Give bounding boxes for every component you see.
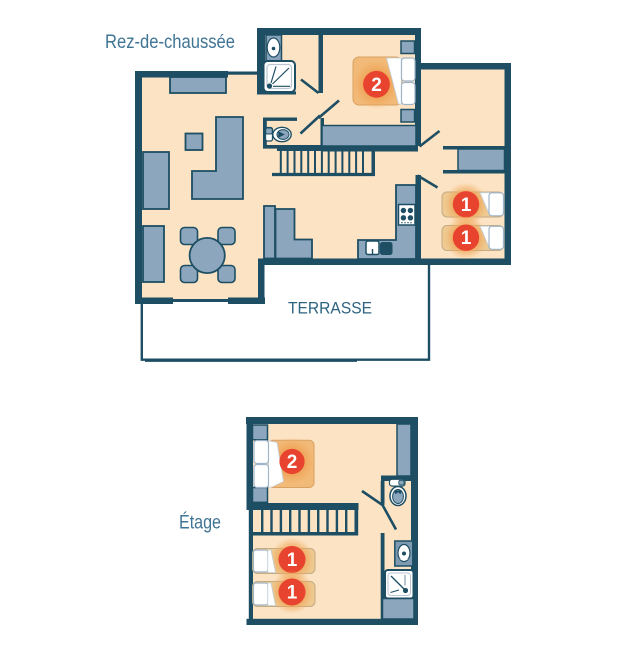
svg-text:TERRASSE: TERRASSE [288, 300, 372, 318]
svg-text:1: 1 [287, 583, 298, 604]
svg-text:1: 1 [461, 195, 472, 216]
svg-text:Étage: Étage [179, 511, 221, 534]
svg-text:2: 2 [287, 452, 298, 473]
svg-text:Rez-de-chaussée: Rez-de-chaussée [105, 31, 235, 53]
svg-text:2: 2 [371, 75, 382, 96]
svg-text:1: 1 [461, 228, 472, 249]
svg-text:1: 1 [287, 550, 298, 571]
